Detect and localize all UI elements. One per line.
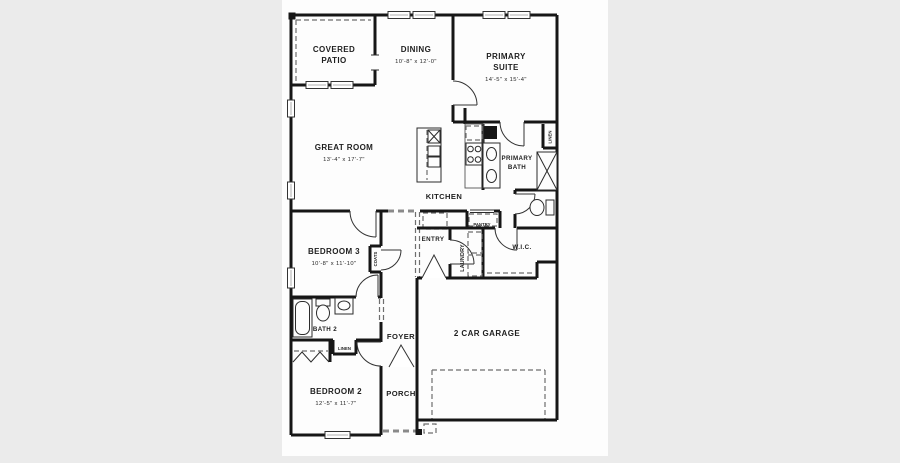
window xyxy=(288,182,295,199)
bedroom3-dims: 10'-8" x 11'-10" xyxy=(312,261,357,267)
dining-label: DINING xyxy=(401,45,431,54)
covered-patio-label: COVERED xyxy=(313,45,355,54)
foyer-label: FOYER xyxy=(387,332,415,341)
covered-patio-label2: PATIO xyxy=(321,56,346,65)
window xyxy=(288,100,295,117)
toilet-icon-primary xyxy=(530,200,554,216)
window xyxy=(331,82,353,89)
primary-suite-dims: 14'-5" x 15'-4" xyxy=(485,77,527,83)
dining-dims: 10'-8" x 12'-0" xyxy=(395,59,437,65)
great-room-dims: 13'-4" x 17'-7" xyxy=(323,157,365,163)
bath2-label: BATH 2 xyxy=(313,326,337,333)
primary-suite-label: PRIMARY xyxy=(486,52,526,61)
patio-corner-post xyxy=(289,13,296,20)
entry-label: ENTRY xyxy=(422,236,445,243)
sink-icon-bath2 xyxy=(335,298,353,314)
bedroom3-label: BEDROOM 3 xyxy=(308,247,360,256)
chase-block xyxy=(484,126,497,139)
linen-primary-label: LINEN xyxy=(548,130,553,143)
primary-suite-label2: SUITE xyxy=(493,63,519,72)
great-room-label: GREAT ROOM xyxy=(315,143,374,152)
vanity-double-sink xyxy=(483,143,500,188)
window xyxy=(288,268,295,288)
garage-label: 2 CAR GARAGE xyxy=(454,329,520,338)
bedroom2-dims: 12'-5" x 11'-7" xyxy=(315,401,356,407)
window xyxy=(325,432,350,439)
window xyxy=(388,12,410,19)
window xyxy=(413,12,435,19)
floor-plan-svg: COVERED PATIO DINING 10'-8" x 12'-0" PRI… xyxy=(0,0,900,463)
laundry-label: LAUNDRY xyxy=(460,244,466,272)
toilet-icon-bath2 xyxy=(316,299,330,321)
window xyxy=(483,12,505,19)
wic-label: W.I.C. xyxy=(512,244,531,251)
porch-post xyxy=(416,429,422,435)
coats-label: COATS xyxy=(373,251,378,266)
tub-icon xyxy=(293,299,312,337)
primary-bath-label: PRIMARY xyxy=(501,155,533,162)
kitchen-island xyxy=(417,128,441,182)
window xyxy=(508,12,530,19)
window xyxy=(306,82,328,89)
kitchen-label: KITCHEN xyxy=(426,192,463,201)
shower-icon xyxy=(537,152,557,190)
pantry-label: PANTRY xyxy=(473,222,490,227)
bedroom2-label: BEDROOM 2 xyxy=(310,387,362,396)
floor-plan-image: COVERED PATIO DINING 10'-8" x 12'-0" PRI… xyxy=(0,0,900,463)
porch-label: PORCH xyxy=(386,389,415,398)
primary-bath-label2: BATH xyxy=(508,164,526,171)
linen-bath2-label: LINEN xyxy=(338,346,351,351)
